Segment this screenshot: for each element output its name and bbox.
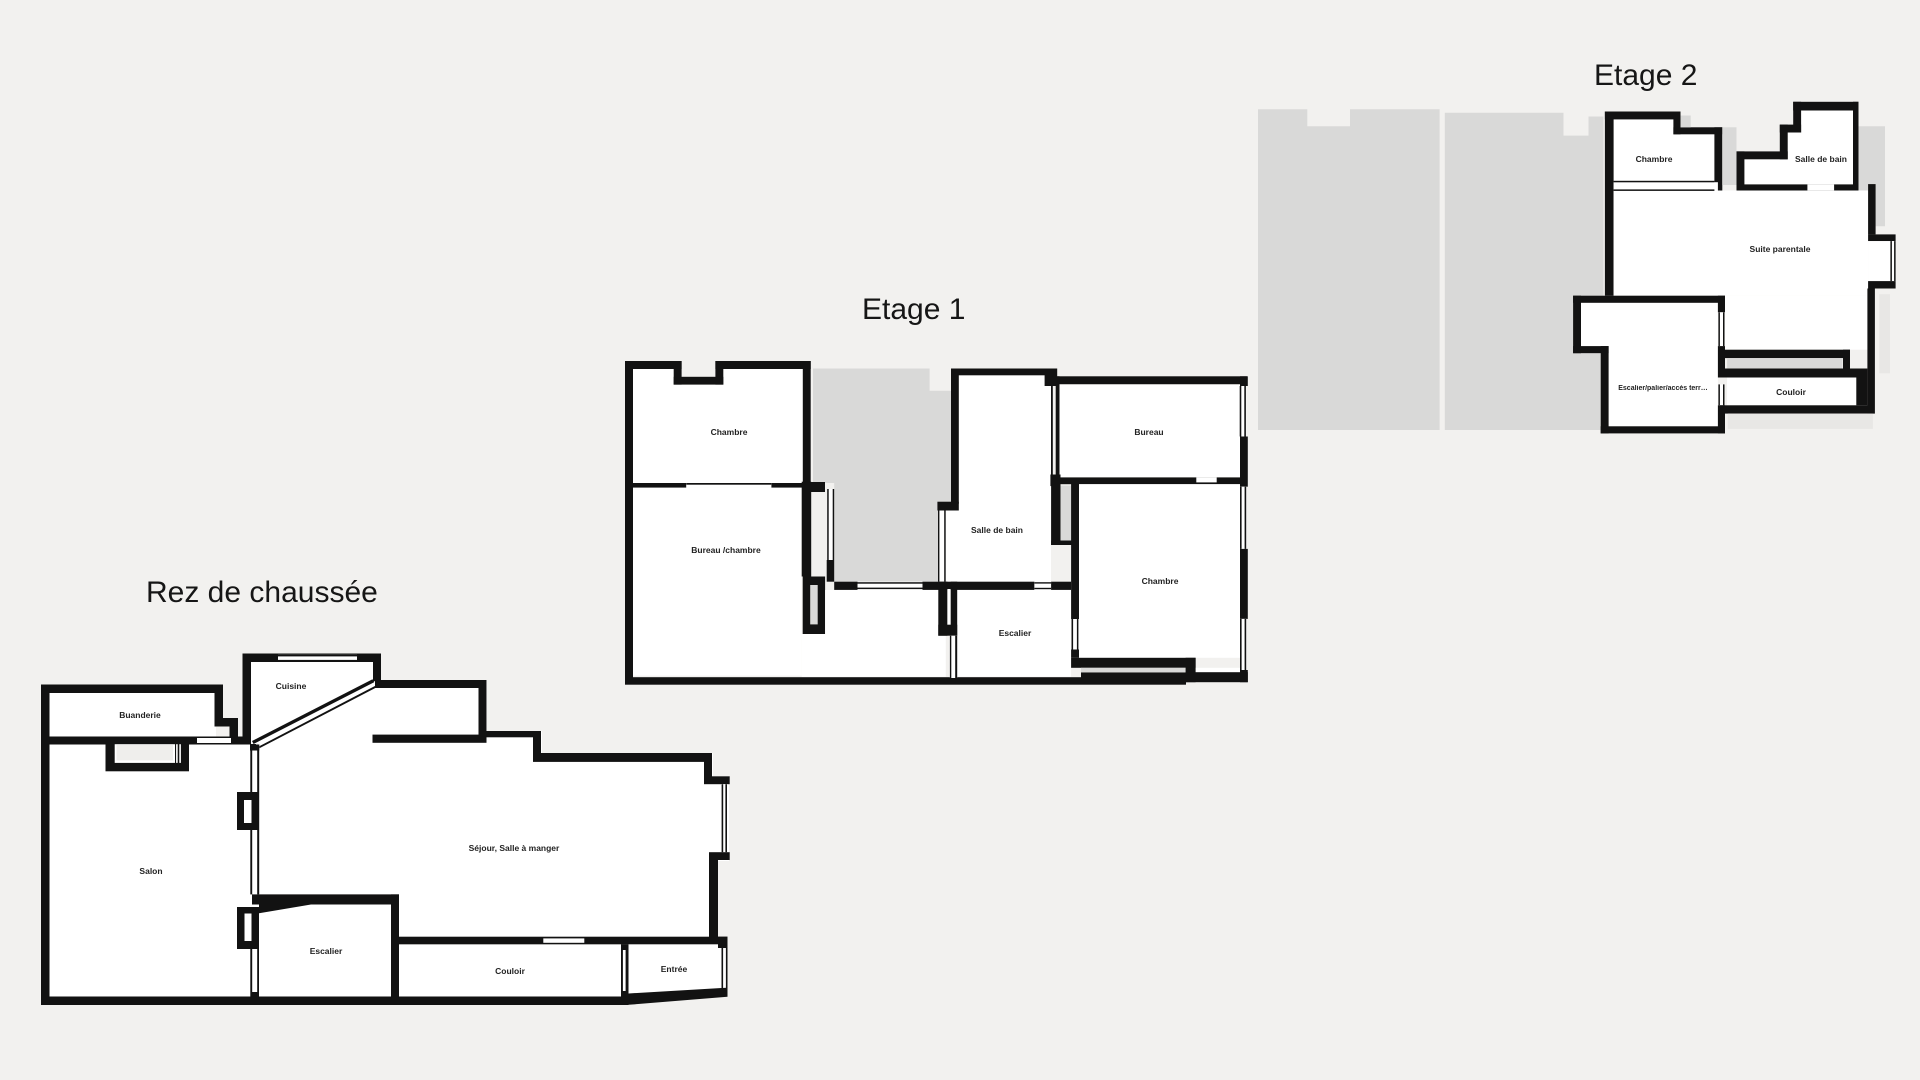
svg-text:Salle de bain: Salle de bain (971, 525, 1023, 535)
svg-text:Bureau: Bureau (1134, 427, 1163, 437)
svg-text:Rez de chaussée: Rez de chaussée (146, 576, 378, 609)
svg-text:Escalier: Escalier (310, 946, 343, 956)
svg-text:Cuisine: Cuisine (276, 681, 307, 691)
svg-text:Chambre: Chambre (711, 427, 748, 437)
svg-text:Escalier/palier/accès terr…: Escalier/palier/accès terr… (1618, 385, 1708, 392)
svg-text:Séjour, Salle à manger: Séjour, Salle à manger (469, 843, 560, 853)
svg-text:Escalier: Escalier (999, 628, 1032, 638)
svg-text:Etage 2: Etage 2 (1594, 59, 1697, 92)
svg-text:Salon: Salon (139, 866, 162, 876)
svg-text:Bureau /chambre: Bureau /chambre (691, 545, 761, 555)
svg-text:Salle de bain: Salle de bain (1795, 154, 1847, 164)
svg-text:Buanderie: Buanderie (119, 710, 161, 720)
svg-text:Couloir: Couloir (1776, 387, 1806, 397)
svg-text:Entrée: Entrée (661, 964, 688, 974)
svg-text:Couloir: Couloir (495, 966, 525, 976)
svg-text:Suite parentale: Suite parentale (1750, 244, 1811, 254)
svg-text:Etage 1: Etage 1 (862, 293, 965, 326)
svg-text:Chambre: Chambre (1142, 576, 1179, 586)
svg-text:Chambre: Chambre (1636, 154, 1673, 164)
